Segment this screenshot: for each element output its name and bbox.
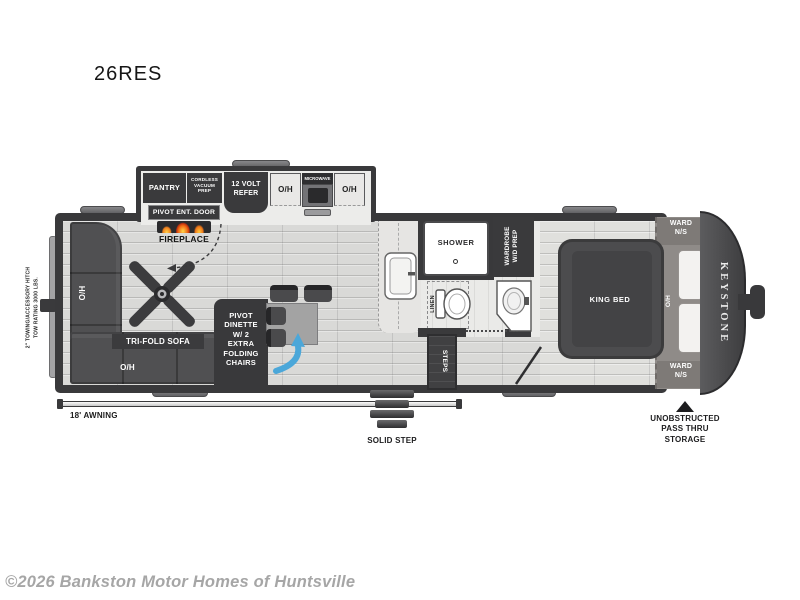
linen-label: LINEN (430, 282, 440, 326)
storage-pointer (676, 401, 694, 412)
overhead-cabinet-kitchen-left: O/H (270, 173, 301, 206)
awning-end-cap (456, 399, 462, 409)
fireplace-unit (157, 221, 211, 233)
dinette-folding-chair (266, 329, 286, 347)
wardrobe-nightstand-top: WARD N/S (657, 218, 705, 245)
brand-name: KEYSTONE (715, 237, 729, 369)
sofa-label: TRI-FOLD SOFA (112, 334, 204, 349)
range-front (304, 209, 331, 216)
dinette-folding-chair (266, 307, 286, 325)
microwave: MICROWAVE (302, 173, 333, 184)
shower-drain (453, 259, 458, 264)
range-cooktop (302, 184, 333, 207)
hitch-note: 2" TOWING/ACCESSORY HITCH TOW RATING 300… (26, 253, 41, 363)
range-burners (308, 188, 328, 203)
dinette-label-box: PIVOT DINETTE W/ 2 EXTRA FOLDING CHAIRS (214, 299, 268, 389)
step-bar (370, 410, 414, 418)
page-title: 26RES (94, 63, 162, 86)
kitchen-counter-seam (384, 223, 399, 329)
pantry-cabinet: PANTRY (143, 173, 186, 203)
step-bar (370, 390, 414, 398)
step-bar (375, 400, 409, 408)
step-bar (377, 420, 407, 428)
dinette-chair (304, 285, 332, 302)
bed-overhead-label: O/H (665, 284, 675, 318)
copyright-watermark: ©2026 Bankston Motor Homes of Huntsville (5, 573, 355, 592)
vacuum-prep-cabinet: CORDLESS VACUUM PREP (187, 173, 222, 203)
awning-label: 18' AWNING (70, 411, 150, 421)
fireplace-label: FIREPLACE (145, 234, 223, 245)
entry-door: PIVOT ENT. DOOR (148, 205, 220, 220)
refrigerator: 12 VOLT REFER (224, 172, 268, 213)
microwave-range-stack: MICROWAVE (302, 173, 333, 217)
king-bed-label: KING BED (560, 295, 660, 304)
floorplan-page: 26RES 2" TOWING/ACCESSORY HITCH TOW RATI… (0, 0, 800, 600)
dinette-chair (270, 285, 298, 302)
hitch-pin-knob (750, 285, 765, 319)
bath-pocket-door (466, 330, 518, 332)
rear-accessory-hitch (40, 299, 56, 312)
solid-step-label: SOLID STEP (355, 436, 429, 446)
awning-end-cap (57, 399, 63, 409)
sofa-overhead-label: O/H (78, 273, 90, 313)
solid-step (366, 390, 418, 434)
pass-thru-storage-label: UNOBSTRUCTED PASS THRU STORAGE (640, 414, 730, 445)
sofa-overhead-bottom-label: O/H (105, 361, 150, 374)
shower-label: SHOWER (425, 238, 487, 247)
wardrobe-nightstand-bottom: WARD N/S (657, 361, 705, 388)
wardrobe-wd-prep-label: WARDROBE W/D PREP (504, 217, 522, 275)
shower: SHOWER (423, 221, 489, 276)
overhead-cabinet-kitchen-right: O/H (334, 173, 365, 206)
steps-label: STEPS (436, 334, 448, 388)
